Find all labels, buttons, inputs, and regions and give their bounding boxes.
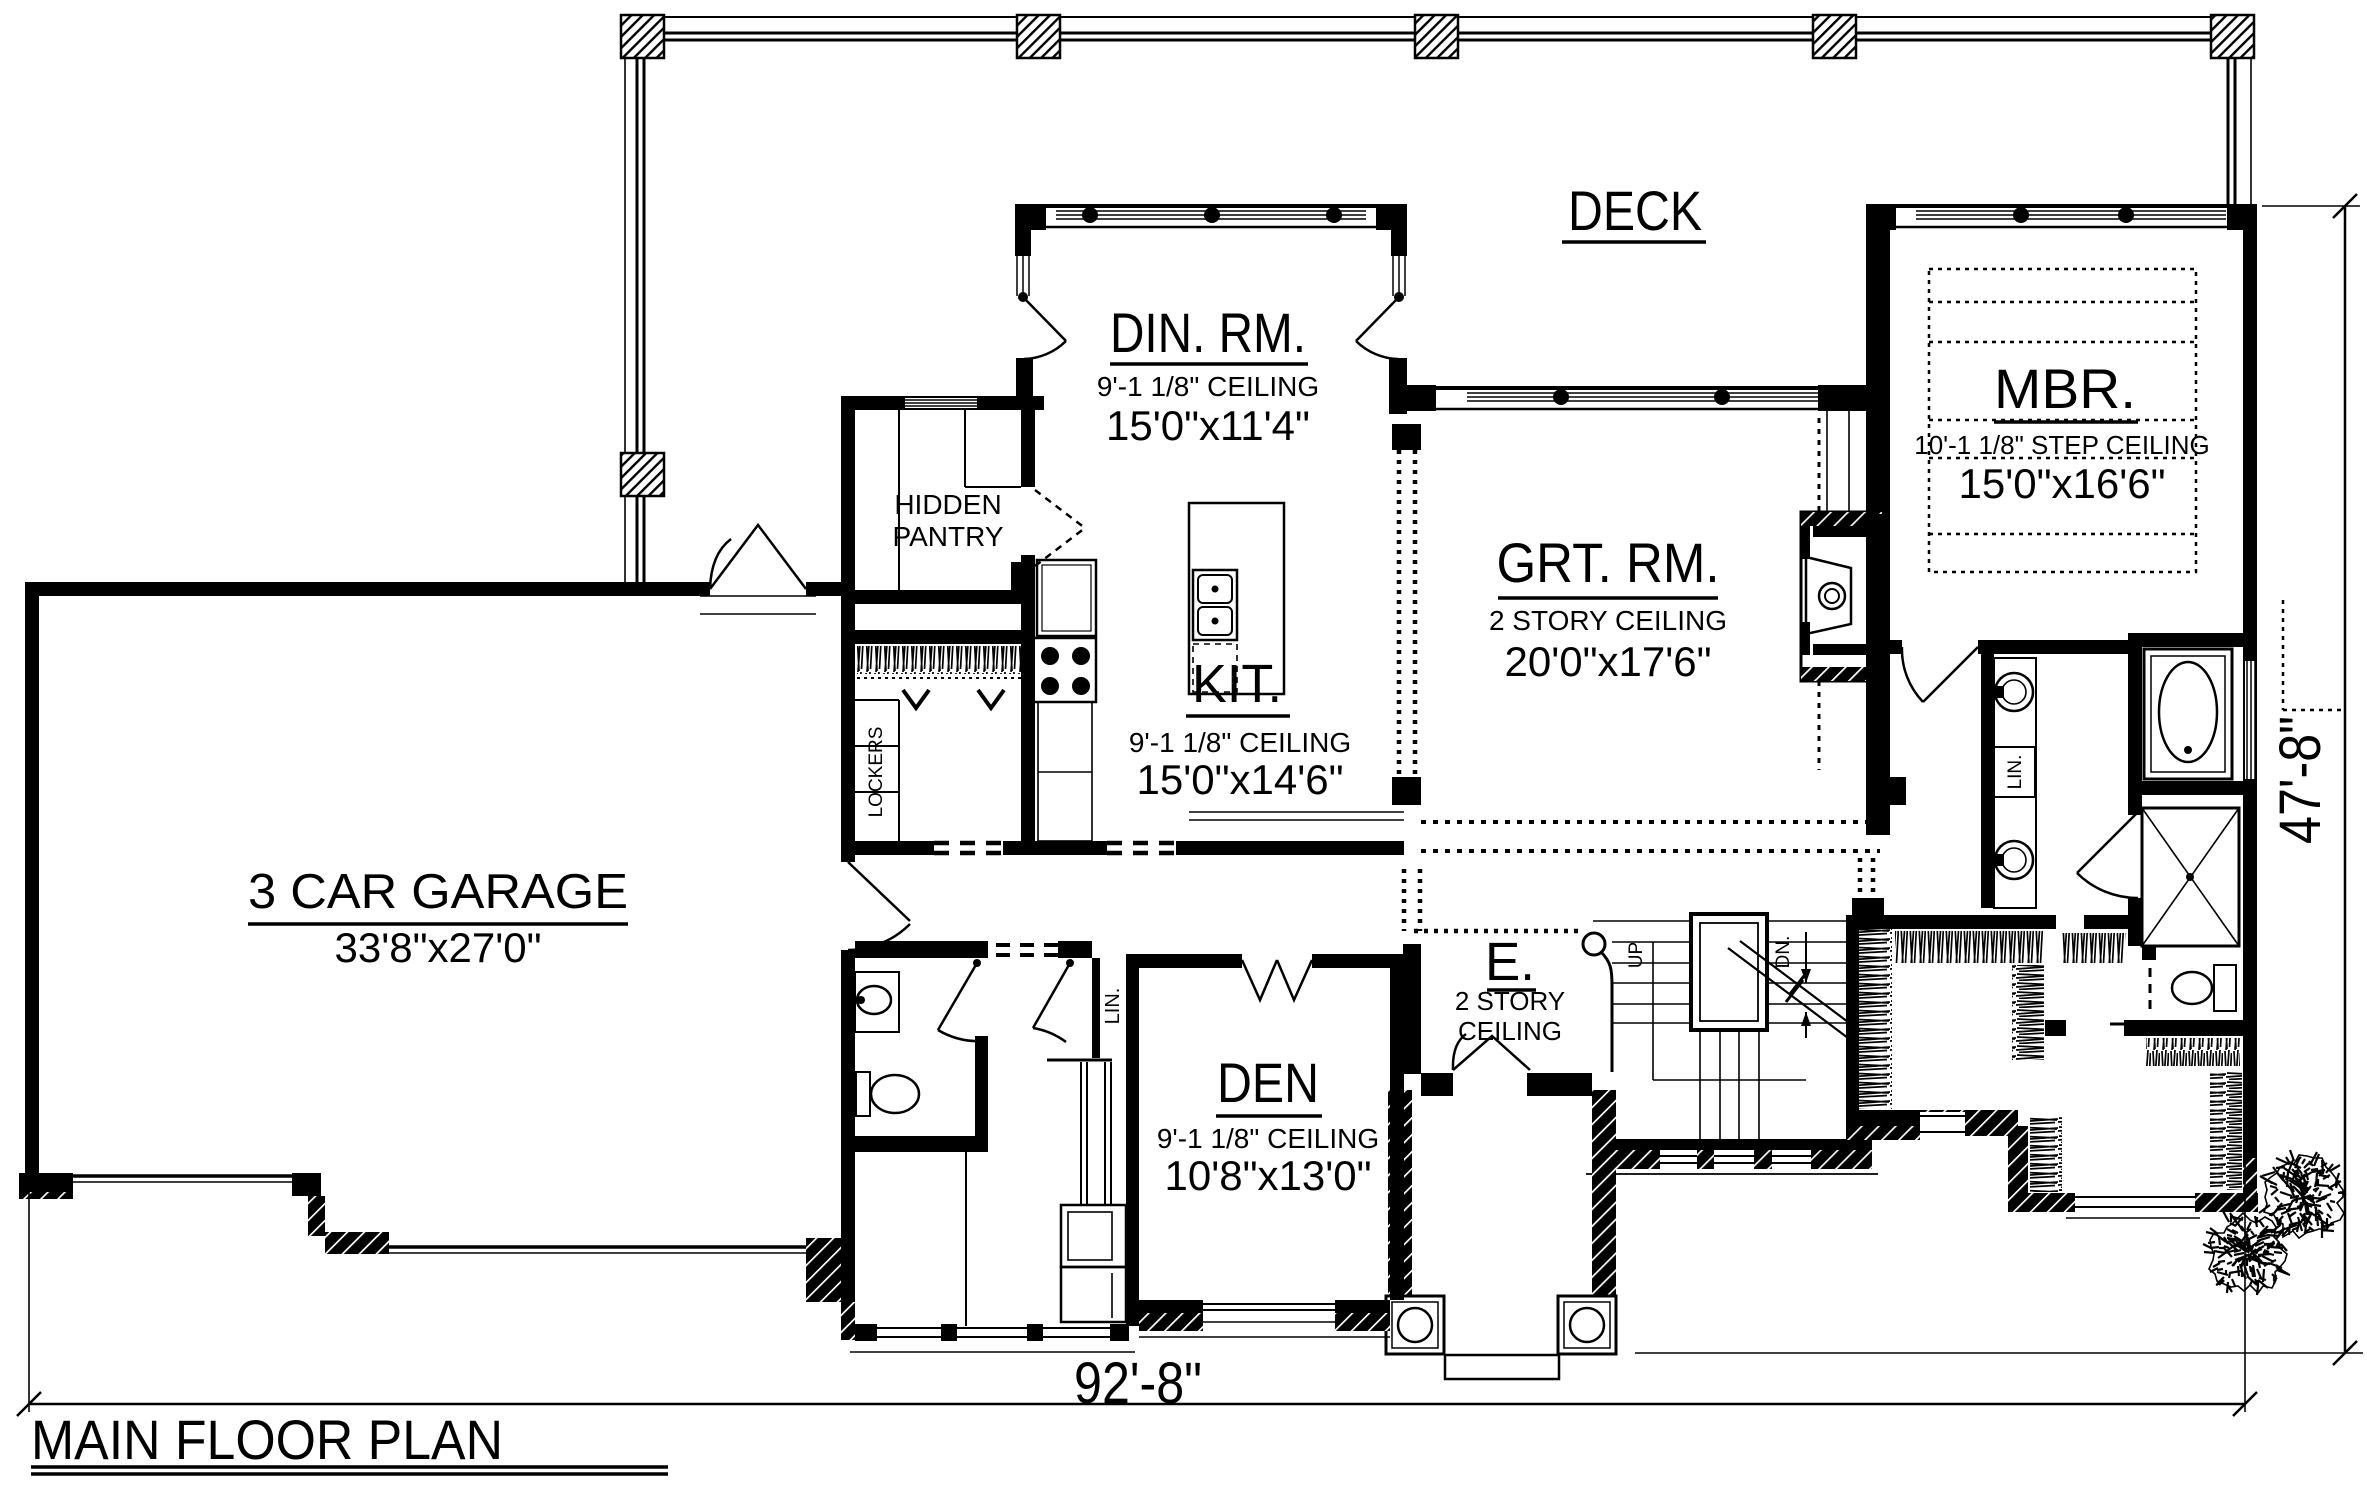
svg-text:HIDDEN: HIDDEN: [894, 489, 1001, 520]
svg-text:15'0"x14'6": 15'0"x14'6": [1136, 756, 1343, 803]
svg-text:2 STORY: 2 STORY: [1455, 986, 1565, 1016]
svg-text:LOCKERS: LOCKERS: [866, 727, 887, 818]
svg-text:MAIN FLOOR PLAN: MAIN FLOOR PLAN: [31, 1408, 503, 1471]
svg-text:9'-1 1/8" CEILING: 9'-1 1/8" CEILING: [1157, 1123, 1379, 1154]
svg-text:E.: E.: [1485, 932, 1535, 992]
svg-text:10'8"x13'0": 10'8"x13'0": [1164, 1152, 1371, 1199]
svg-text:GRT. RM.: GRT. RM.: [1497, 531, 1720, 594]
svg-text:MBR.: MBR.: [1994, 357, 2136, 420]
svg-text:15'0"x11'4": 15'0"x11'4": [1106, 402, 1310, 449]
svg-text:LIN.: LIN.: [1102, 988, 1124, 1025]
svg-text:DECK: DECK: [1568, 179, 1702, 242]
svg-text:DN.: DN.: [1773, 936, 1794, 969]
svg-text:UP: UP: [1626, 942, 1647, 968]
svg-text:10'-1 1/8" STEP CEILING: 10'-1 1/8" STEP CEILING: [1914, 430, 2210, 460]
svg-text:9'-1 1/8" CEILING: 9'-1 1/8" CEILING: [1097, 371, 1319, 402]
svg-text:KIT.: KIT.: [1192, 654, 1282, 714]
svg-text:PANTRY: PANTRY: [893, 521, 1004, 552]
svg-text:CEILING: CEILING: [1458, 1016, 1562, 1046]
svg-text:2 STORY CEILING: 2 STORY CEILING: [1489, 605, 1727, 636]
svg-text:DIN. RM.: DIN. RM.: [1110, 301, 1306, 364]
svg-text:9'-1 1/8" CEILING: 9'-1 1/8" CEILING: [1129, 727, 1351, 758]
svg-text:92'-8": 92'-8": [1074, 1351, 1202, 1416]
svg-text:15'0"x16'6": 15'0"x16'6": [1958, 460, 2165, 507]
svg-text:DEN: DEN: [1217, 1051, 1319, 1114]
svg-text:33'8"x27'0": 33'8"x27'0": [334, 924, 541, 971]
svg-text:3 CAR GARAGE: 3 CAR GARAGE: [248, 865, 628, 919]
svg-text:47'-8": 47'-8": [2268, 716, 2333, 844]
svg-text:20'0"x17'6": 20'0"x17'6": [1504, 638, 1711, 685]
svg-text:LIN.: LIN.: [2005, 755, 2026, 790]
